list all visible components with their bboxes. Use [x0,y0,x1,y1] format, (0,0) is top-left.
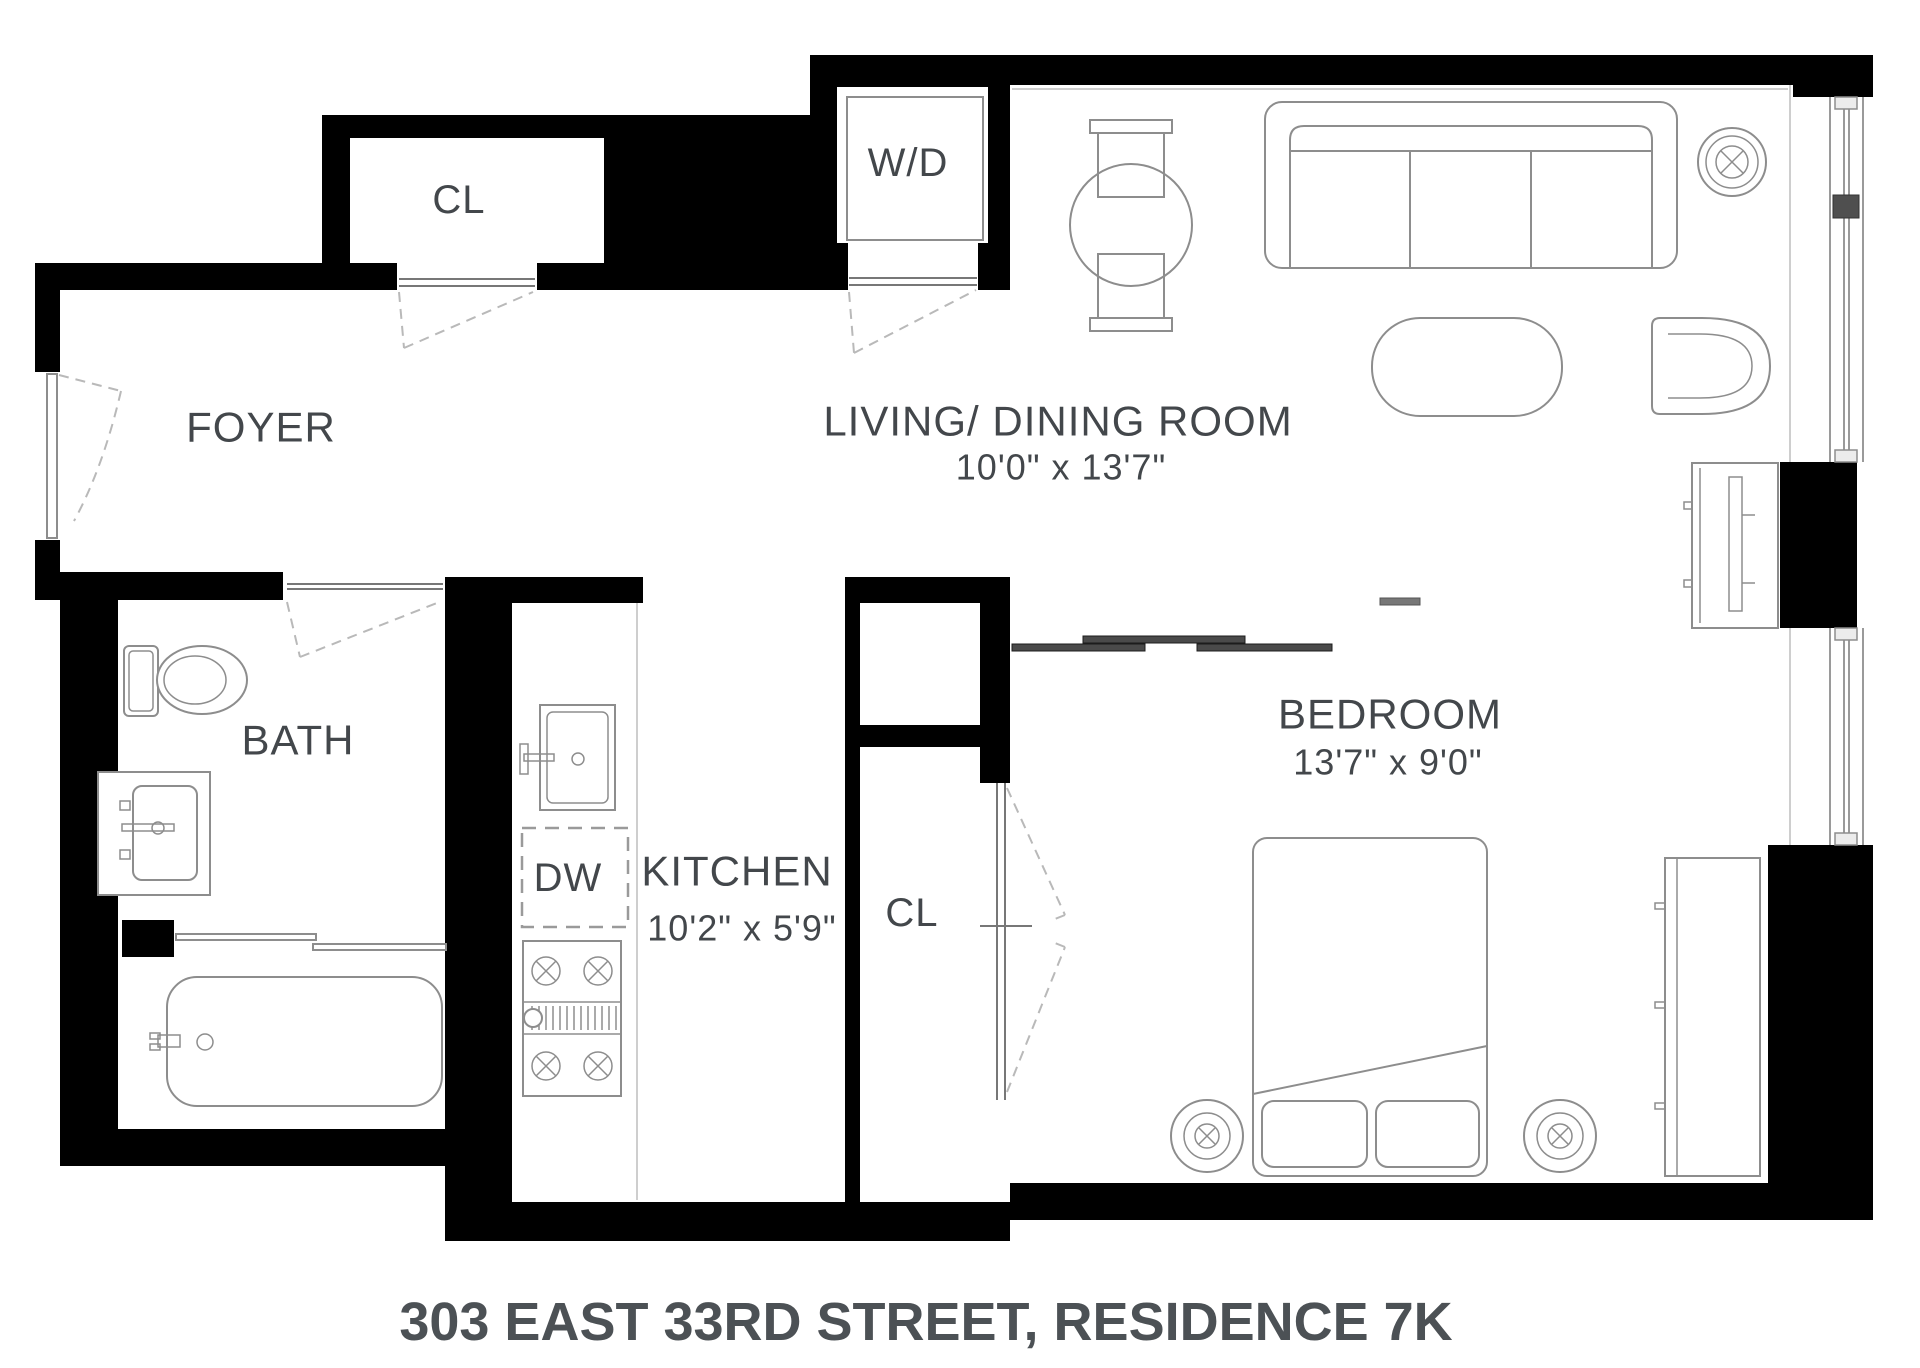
bedroom-furniture [1171,838,1760,1176]
dining-table [1070,164,1192,286]
washer-dryer-label: W/D [868,141,949,185]
bedroom-dimensions: 13'7" x 9'0" [1293,742,1482,783]
tv-console [1684,463,1778,628]
kitchen-dimensions: 10'2" x 5'9" [647,908,836,949]
dining-chair-bottom [1090,254,1172,331]
kitchen-label: KITCHEN [641,848,832,895]
foyer-label: FOYER [186,404,336,451]
dresser [1655,858,1760,1176]
foyer-closet-label: CL [432,178,485,222]
bedroom-closet-label: CL [885,891,938,935]
dishwasher-label: DW [534,856,603,900]
living-furniture [1070,102,1778,628]
armchair [1652,318,1770,414]
floor-plan-drawing: FOYER LIVING/ DINING ROOM 10'0" x 13'7" … [0,0,1920,1368]
bed [1253,838,1487,1176]
washer-dryer-door [849,278,977,353]
range-stove [523,941,621,1096]
bath-fixtures [98,646,446,1106]
plan-title: 303 EAST 33RD STREET, RESIDENCE 7K [399,1292,1452,1352]
toilet [124,646,247,716]
nightstand-right [1524,1100,1596,1172]
pillow [1376,1101,1479,1167]
living-dining-label: LIVING/ DINING ROOM [823,398,1292,445]
dining-chair-top [1090,120,1172,197]
bath-label: BATH [242,717,355,764]
bathtub [150,934,446,1106]
kitchen-sink [520,705,615,810]
living-dining-dimensions: 10'0" x 13'7" [956,447,1166,488]
coffee-table [1372,318,1562,416]
sofa [1265,102,1677,268]
floor-plan-page: FOYER LIVING/ DINING ROOM 10'0" x 13'7" … [0,0,1920,1368]
vanity-sink [98,772,210,895]
foyer-closet-door [399,279,535,348]
side-table-lamp [1698,128,1766,196]
nightstand-left [1171,1100,1243,1172]
pillow [1262,1101,1367,1167]
window-mullion [1833,195,1859,218]
bedroom-closet-door [980,783,1065,1100]
window-living [1830,97,1863,462]
bath-door [287,584,443,657]
window-bedroom [1830,628,1863,845]
sliding-partition [1012,598,1420,651]
entry-door [47,374,121,538]
bedroom-label: BEDROOM [1278,691,1502,738]
